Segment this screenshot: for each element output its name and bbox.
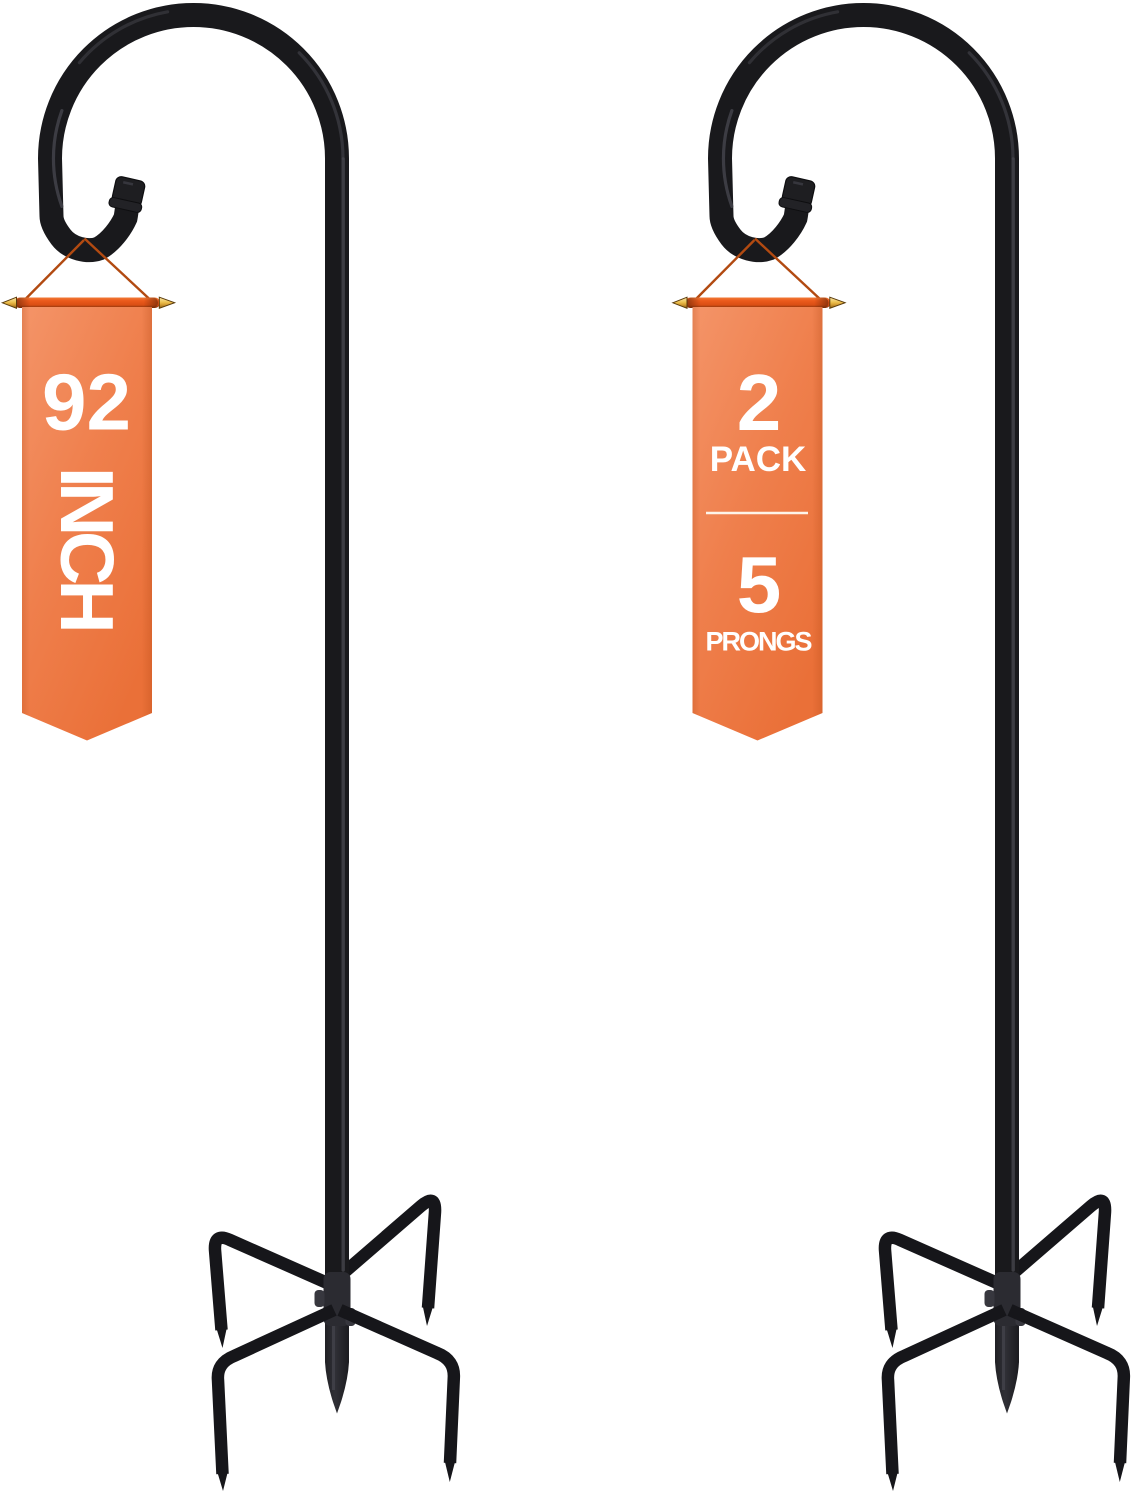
svg-text:PRONGS: PRONGS	[705, 627, 811, 657]
svg-text:PACK: PACK	[710, 440, 807, 479]
svg-text:5: 5	[737, 540, 782, 629]
svg-text:2: 2	[737, 358, 782, 447]
svg-text:92: 92	[42, 358, 131, 447]
svg-text:INCH: INCH	[45, 467, 129, 630]
